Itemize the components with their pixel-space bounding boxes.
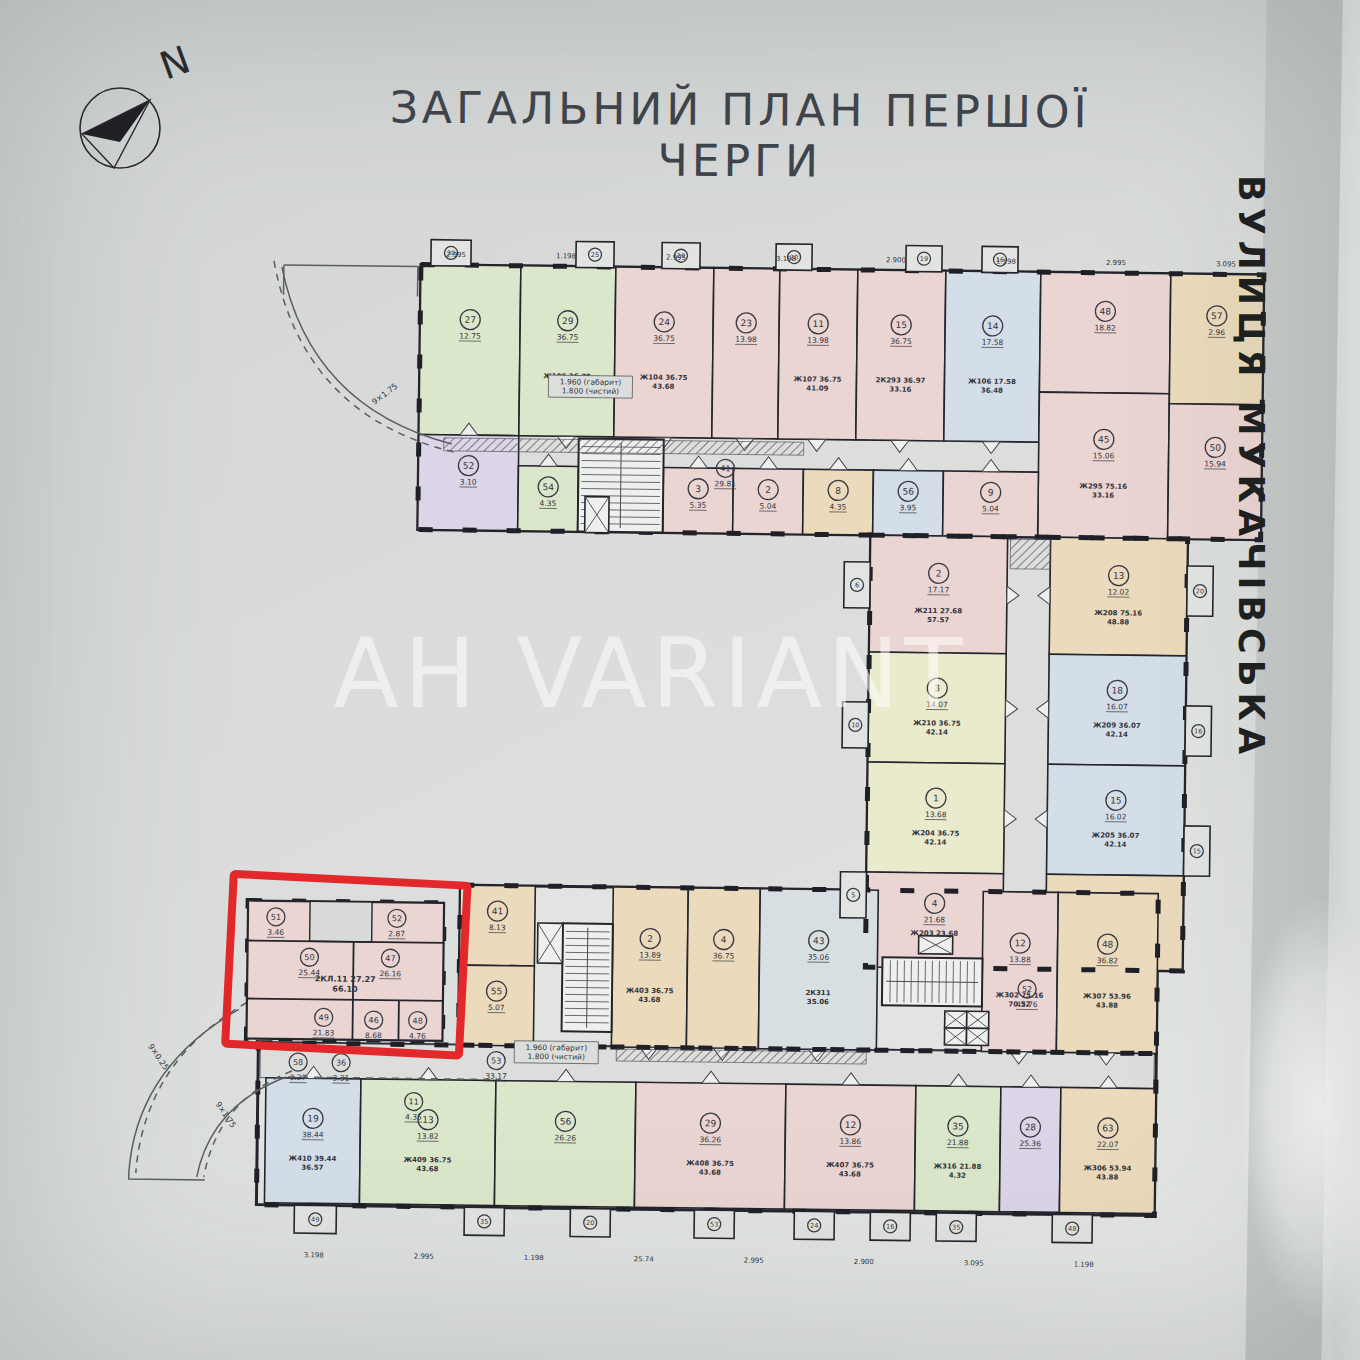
unit-number: 2 — [647, 934, 653, 944]
apartment-label: Ж403 36.75 — [626, 987, 674, 996]
unit-area: 3.10 — [460, 477, 477, 486]
room-number: 52 — [1022, 985, 1032, 994]
dimension-label: 2.995 — [414, 1253, 434, 1261]
apartment-label-area: 43.88 — [1096, 1173, 1118, 1181]
unit-number: 57 — [1211, 311, 1223, 321]
unit-number: 43 — [813, 936, 825, 946]
highlight-room-number: 52 — [392, 914, 402, 923]
unit-area: 36.75 — [890, 337, 912, 346]
unit-cell — [494, 1081, 636, 1208]
balcony-number: 49 — [311, 1216, 319, 1224]
room-area: 4.35 — [405, 1112, 422, 1121]
apartment-label-area: 42.14 — [1104, 841, 1126, 849]
unit-cell — [944, 271, 1041, 442]
unit-area: 14.07 — [926, 700, 948, 709]
apartment-label: Ж408 36.75 — [686, 1159, 734, 1168]
unit-cell — [981, 891, 1058, 1052]
unit-cell — [614, 267, 714, 438]
highlight-room-area: 4.76 — [409, 1031, 426, 1040]
unit-area: 16.07 — [1106, 702, 1128, 711]
apartment-label: Ж210 36.75 — [913, 719, 961, 728]
unit-area: 13.68 — [925, 810, 947, 819]
balcony-number: 35 — [480, 1218, 488, 1226]
floor-plan-photo: N ЗАГАЛЬНИЙ ПЛАН ПЕРШОЇ ЧЕРГИ 2712.75293… — [0, 0, 1360, 1360]
unit-number: 4 — [932, 898, 938, 908]
apartment-label: Ж209 36.07 — [1093, 721, 1141, 730]
unit-number: 29 — [562, 316, 574, 326]
unit-cell — [686, 888, 760, 1049]
site-arc — [129, 1173, 205, 1180]
unit-number: 4 — [721, 935, 727, 945]
unit-cell — [1049, 537, 1187, 656]
highlight-apartment-area: 66.10 — [332, 985, 358, 994]
dimension-label: 1.198 — [524, 1254, 544, 1262]
unit-number: 41 — [492, 906, 504, 916]
apartment-label: Ж208 75.16 — [1094, 609, 1142, 618]
unit-area: 8.13 — [489, 923, 506, 932]
apartment-label-area: 42.14 — [1106, 731, 1128, 739]
unit-cell — [856, 270, 946, 441]
apartment-label-area: 4.32 — [949, 1172, 966, 1180]
unit-area: 13.88 — [1009, 955, 1031, 964]
unit-number: 19 — [307, 1113, 319, 1123]
unit-cell — [999, 1087, 1061, 1213]
unit-cell — [359, 1079, 496, 1206]
unit-number: 48 — [1102, 939, 1114, 949]
unit-cell — [611, 887, 688, 1048]
building-plan: 2712.752936.75Ж105 36.7543.682436.75Ж104… — [128, 236, 1264, 1271]
unit-cell — [264, 1078, 361, 1204]
unit-area: 21.88 — [947, 1138, 969, 1147]
unit-number: 12 — [1014, 938, 1026, 948]
unit-area: 4.35 — [830, 502, 847, 511]
room-number: 11 — [409, 1097, 419, 1106]
unit-area: 36.26 — [699, 1135, 721, 1144]
note-label: 1.800 (чистий) — [562, 386, 619, 396]
apartment-label-area: 43.68 — [652, 383, 674, 391]
apartment-label-area: 43.68 — [699, 1169, 721, 1177]
highlight-room-number: 46 — [369, 1016, 379, 1025]
apartment-label: 2К293 36.97 — [876, 376, 926, 385]
unit-area: 35.06 — [808, 953, 830, 962]
unit-number: 55 — [491, 986, 503, 996]
balcony-number: 16 — [886, 1223, 894, 1231]
dimension-label: 1.198 — [1074, 1261, 1094, 1269]
unit-cell — [419, 265, 521, 436]
apartment-label-area: 43.68 — [638, 996, 660, 1004]
unit-area: 17.17 — [928, 585, 950, 594]
unit-area: 13.89 — [639, 950, 661, 959]
apartment-label: Ж295 75.16 — [1079, 482, 1127, 491]
unit-number: 13 — [1113, 571, 1125, 581]
apartment-label: Ж409 36.75 — [404, 1156, 452, 1165]
highlight-apartment-label: 2КЛ.11 27.27 — [315, 974, 376, 984]
dimension-label: 2.900 — [854, 1258, 874, 1266]
apartment-label: Ж302 75.16 — [996, 991, 1044, 1000]
unit-number: 35 — [952, 1121, 964, 1131]
highlight-room-number: 50 — [304, 953, 314, 962]
apartment-label: 2К311 — [805, 989, 830, 997]
unit-number: 63 — [1102, 1123, 1114, 1133]
unit-number: 2 — [765, 485, 771, 495]
unit-number: 50 — [1209, 443, 1221, 453]
balcony-number: 53 — [710, 1220, 718, 1228]
apartment-label: Ж410 39.44 — [289, 1155, 337, 1164]
highlight-apartment-notch — [310, 901, 372, 942]
apartment-label-area: 43.88 — [1096, 1001, 1118, 1009]
highlight-room-number: 47 — [385, 954, 395, 963]
unit-cell — [1059, 1087, 1156, 1213]
unit-number: 1 — [933, 793, 939, 803]
dimension-label: 3.198 — [304, 1251, 324, 1259]
apartment-label: Ж211 27.68 — [914, 607, 962, 616]
dimension-label: 2.995 — [1106, 259, 1126, 267]
unit-number: 8 — [835, 486, 841, 496]
apartment-label: Ж306 53.94 — [1083, 1164, 1131, 1173]
unit-number: 12 — [845, 1120, 857, 1130]
unit-number: 9 — [988, 488, 994, 498]
dimension-label: 2.995 — [446, 251, 466, 259]
dimension-label: 3.198 — [776, 255, 796, 263]
unit-number: 27 — [464, 315, 476, 325]
unit-area: 13.98 — [807, 336, 829, 345]
dimension-label: 2.995 — [744, 1257, 764, 1265]
apartment-label: Ж107 36.75 — [794, 375, 842, 384]
unit-area: 16.02 — [1105, 812, 1127, 821]
unit-area: 5.04 — [760, 502, 777, 511]
apartment-label: Ж307 53.96 — [1083, 992, 1131, 1001]
apartment-label: Ж204 36.75 — [912, 829, 960, 838]
unit-cell — [712, 268, 780, 439]
highlight-room-area: 2.87 — [388, 929, 405, 938]
unit-number: 29 — [705, 1118, 717, 1128]
highlight-room-area: 26.16 — [379, 969, 401, 978]
note-label: 1.800 (чистий) — [528, 1052, 585, 1062]
dimension-label: 1.198 — [996, 258, 1016, 266]
unit-cell — [634, 1082, 786, 1209]
unit-number: 52 — [463, 461, 475, 471]
dimension-label: 25.74 — [634, 1255, 655, 1263]
unit-area: 15.06 — [1093, 451, 1115, 460]
apartment-label-area: 43.68 — [416, 1165, 438, 1173]
unit-number: 23 — [740, 318, 752, 328]
balcony-number: 25 — [591, 251, 599, 259]
apartment-label: Ж106 17.58 — [968, 377, 1016, 386]
unit-area: 22.07 — [1097, 1140, 1119, 1149]
unit-number: 3 — [934, 683, 940, 693]
balcony-number: 6 — [855, 581, 859, 589]
unit-area: 38.44 — [302, 1130, 324, 1139]
balcony-number: 19 — [920, 255, 928, 263]
unit-area: 25.36 — [1019, 1139, 1041, 1148]
apartment-label: Ж104 36.75 — [640, 373, 688, 382]
highlight-room-number: 51 — [271, 913, 281, 922]
unit-number: 45 — [1098, 434, 1110, 444]
apartment-label-area: 43.68 — [839, 1170, 861, 1178]
apartment-label-area: 57.57 — [927, 616, 949, 624]
unit-area: 5.04 — [982, 504, 999, 513]
apartment-label-area: 33.16 — [889, 385, 911, 393]
apartment-label-area: 36.48 — [981, 387, 1003, 395]
unit-area: 13.82 — [417, 1132, 439, 1141]
unit-area: 13.98 — [735, 335, 757, 344]
unit-cell — [784, 1084, 916, 1211]
balcony-number: 16 — [1194, 727, 1202, 735]
site-arc — [136, 1001, 247, 1174]
unit-area: 5.07 — [488, 1003, 505, 1012]
unit-area: 21.68 — [924, 915, 946, 924]
unit-number: 56 — [902, 486, 914, 496]
unit-area: 17.58 — [982, 338, 1004, 347]
unit-number: 28 — [1025, 1122, 1037, 1132]
room-number: 53 — [491, 1056, 501, 1065]
apartment-label: Ж205 36.07 — [1092, 831, 1140, 840]
unit-cell — [778, 269, 858, 440]
apartment-label-area: 42.14 — [924, 838, 946, 846]
unit-area: 5.35 — [690, 501, 707, 510]
unit-number: 24 — [658, 317, 670, 327]
apartment-label-area: 33.16 — [1092, 491, 1114, 499]
apartment-label-area: 42.14 — [926, 728, 948, 736]
unit-area: 3.95 — [900, 503, 917, 512]
unit-area: 13.86 — [839, 1137, 861, 1146]
unit-number: 56 — [560, 1117, 572, 1127]
site-arc — [284, 265, 418, 297]
unit-number: 15 — [1110, 795, 1122, 805]
unit-number: 48 — [1100, 306, 1112, 316]
highlight-room-number: 48 — [413, 1016, 423, 1025]
room-number: 36 — [336, 1058, 346, 1067]
balcony-number: 24 — [810, 1222, 818, 1230]
unit-area: 36.75 — [713, 951, 735, 960]
unit-area: 15.94 — [1204, 459, 1226, 468]
apartment-label-area: 41.09 — [806, 384, 828, 392]
dimension-label: 2.995 — [666, 254, 686, 262]
arc-dimension-label: 9×0.25 — [146, 1042, 170, 1072]
unit-cell — [1056, 892, 1158, 1053]
unit-area: 36.82 — [1097, 956, 1119, 965]
room-number: 41 — [720, 464, 730, 473]
balcony-number: 20 — [1196, 587, 1204, 595]
unit-area: 26.26 — [554, 1133, 576, 1142]
hatched-strip — [1010, 539, 1050, 569]
dimension-label: 1.198 — [556, 252, 576, 260]
unit-number: 54 — [542, 482, 554, 492]
unit-cell — [914, 1086, 1001, 1212]
unit-number: 3 — [695, 484, 701, 494]
unit-area: 18.82 — [1094, 323, 1116, 332]
unit-area: 36.75 — [557, 333, 579, 342]
room-area: 42.76 — [1016, 1000, 1038, 1009]
unit-number: 11 — [812, 319, 824, 329]
dimension-label: 3.095 — [964, 1259, 984, 1267]
unit-area: 2.96 — [1208, 328, 1225, 337]
balcony-number: 5 — [851, 891, 855, 899]
room-number: 58 — [293, 1058, 303, 1067]
unit-number: 13 — [422, 1115, 434, 1125]
unit-cell — [1038, 392, 1170, 539]
unit-number: 18 — [1111, 685, 1123, 695]
highlight-room-area: 21.83 — [313, 1028, 335, 1037]
apartment-label: Ж316 21.88 — [933, 1162, 981, 1171]
highlight-room-area: 8.68 — [365, 1031, 382, 1040]
unit-area: 12.02 — [1108, 587, 1130, 596]
balcony-number: 10 — [851, 721, 859, 729]
unit-cell — [519, 266, 616, 437]
apartment-label: Ж407 36.75 — [826, 1161, 874, 1170]
arc-dimension-label: 9×1.75 — [213, 1100, 237, 1130]
highlight-room-number: 49 — [319, 1013, 329, 1022]
highlight-room-area: 3.46 — [267, 928, 284, 937]
unit-number: 2 — [936, 569, 942, 579]
street-name-label: ВУЛИЦЯ МУКАЧІВСЬКА — [1231, 175, 1271, 760]
floor-plan-svg: 2712.752936.75Ж105 36.7543.682436.75Ж104… — [0, 0, 1360, 1360]
dimension-label: 2.900 — [886, 256, 906, 264]
unit-area: 12.75 — [459, 331, 481, 340]
balcony-number: 15 — [1193, 847, 1201, 855]
unit-number: 14 — [987, 321, 999, 331]
unit-cell — [869, 535, 1007, 654]
balcony-number: 35 — [952, 1223, 960, 1231]
unit-area: 4.35 — [540, 499, 557, 508]
apartment-label-area: 36.57 — [301, 1164, 323, 1172]
balcony-number: 48 — [1068, 1225, 1076, 1233]
apartment-label-area: 35.06 — [807, 998, 829, 1006]
unit-area: 36.75 — [653, 334, 675, 343]
unit-number: 15 — [895, 320, 907, 330]
room-area: 29.81 — [714, 479, 736, 488]
apartment-label-area: 48.88 — [1107, 618, 1129, 626]
arc-dimension-label: 9×1.75 — [370, 382, 399, 407]
balcony-number: 20 — [586, 1219, 594, 1227]
